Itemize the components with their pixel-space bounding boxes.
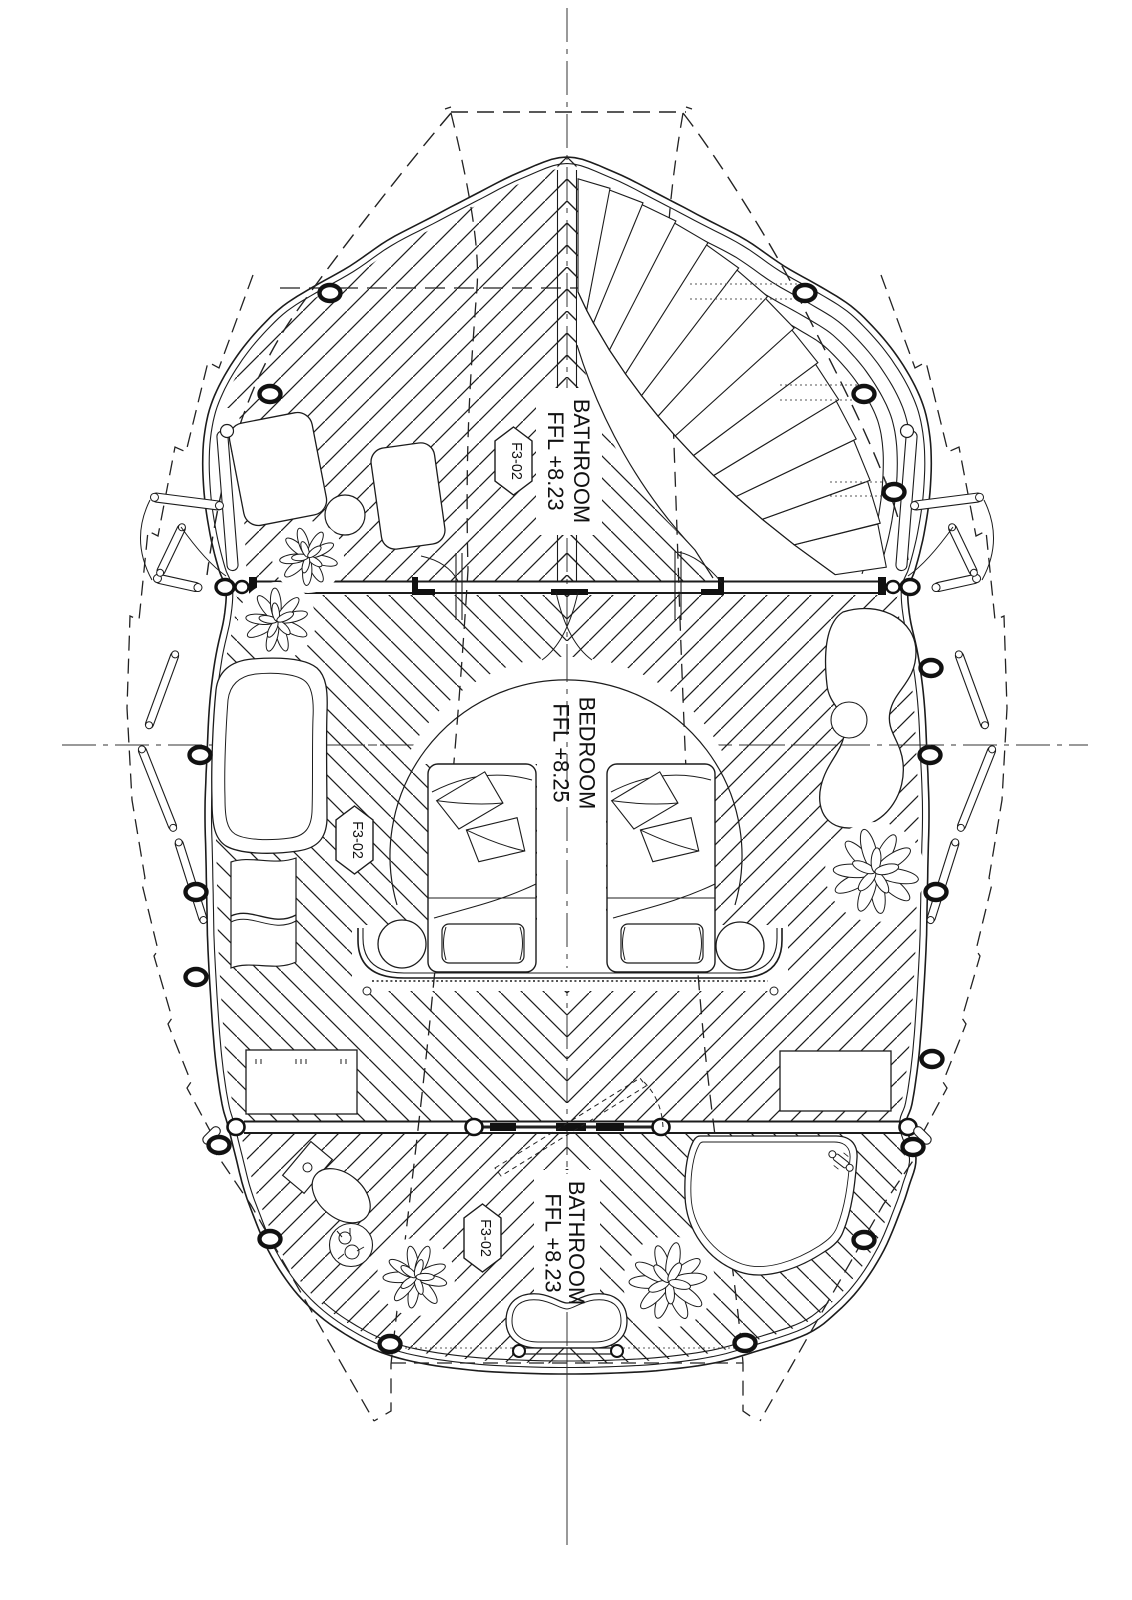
svg-text:BEDROOM: BEDROOM (575, 697, 600, 810)
svg-text:FFL +8.25: FFL +8.25 (549, 703, 574, 802)
svg-text:BATHROOM: BATHROOM (569, 399, 594, 523)
svg-text:F3-02: F3-02 (349, 821, 365, 859)
svg-text:FFL +8.23: FFL +8.23 (543, 411, 568, 510)
svg-text:FFL +8.23: FFL +8.23 (541, 1193, 566, 1292)
svg-text:F3-02: F3-02 (508, 442, 524, 480)
svg-text:BATHROOM: BATHROOM (564, 1181, 589, 1305)
svg-text:F3-02: F3-02 (477, 1219, 493, 1257)
